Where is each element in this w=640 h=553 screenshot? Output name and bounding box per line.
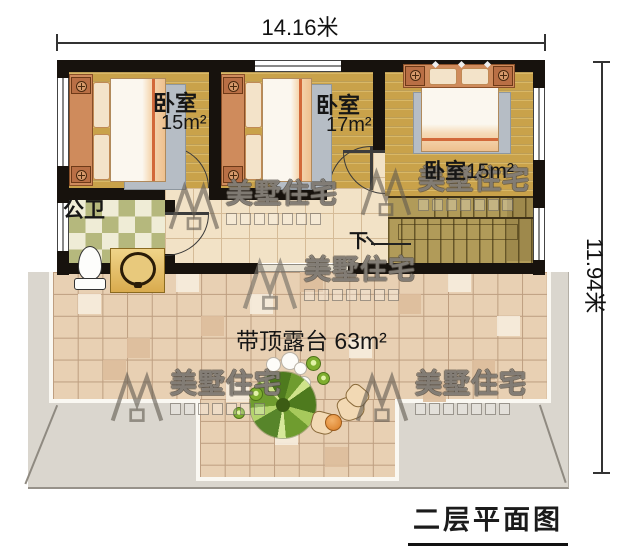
toilet-tank — [74, 278, 106, 290]
room-area-bedroom2: 17m² — [326, 114, 372, 137]
room-label-bathroom: 公卫 — [63, 194, 105, 224]
room-area-terrace: 63m² — [334, 328, 386, 354]
tile-patch — [423, 382, 446, 402]
dimension-top-line — [57, 42, 545, 44]
tile-patch — [497, 316, 520, 336]
tile-patch — [226, 382, 249, 402]
bed-post — [223, 77, 243, 94]
clover-plant — [317, 372, 330, 385]
bed-post — [405, 66, 425, 86]
bed-pillow — [245, 82, 262, 128]
wall — [373, 60, 385, 152]
bed-pillow — [429, 68, 457, 85]
tile-patch — [398, 294, 421, 314]
tile-patch — [472, 360, 495, 380]
bed-post — [223, 166, 243, 183]
floor-plan-canvas: 美墅住宅 美墅住宅 美墅住宅 美墅住宅 — [0, 0, 640, 553]
window — [533, 88, 545, 160]
dimension-tick — [544, 34, 546, 51]
room-area-bedroom1: 15m² — [161, 112, 207, 135]
room-label-terrace-name: 带顶露台 — [236, 328, 328, 354]
window — [255, 60, 341, 72]
page-title: 二层平面图 — [408, 498, 568, 546]
wall — [209, 60, 221, 200]
window — [57, 78, 69, 166]
bed-duvet — [421, 86, 499, 152]
stairs-down-label: 下 — [349, 226, 368, 253]
sink-faucet — [134, 282, 142, 288]
bed-post — [71, 166, 91, 183]
dimension-top-label: 14.16米 — [220, 10, 380, 42]
tile-patch — [103, 360, 126, 380]
sink-basin — [120, 252, 156, 286]
tile-patch — [325, 447, 348, 467]
toilet — [78, 246, 102, 280]
room-label-bedroom3: 卧室15m² — [424, 155, 514, 185]
bed-pillow — [93, 82, 110, 128]
terrace-threshold — [258, 264, 348, 272]
room-area-bedroom3: 15m² — [466, 160, 514, 183]
pebble — [266, 357, 281, 372]
bed-pillow — [461, 68, 489, 85]
bed-post — [493, 66, 513, 86]
dimension-tick — [56, 34, 58, 51]
room-label-bedroom3-name: 卧室 — [424, 160, 466, 183]
plant-center — [276, 398, 290, 412]
dimension-right-label: 11.94米 — [580, 238, 612, 313]
room-label-terrace: 带顶露台 63m² — [236, 322, 387, 356]
tile-patch — [201, 316, 224, 336]
clover-plant — [249, 387, 263, 401]
stairs-direction-line — [371, 243, 411, 245]
bed-duvet — [262, 78, 312, 182]
tile-patch — [176, 272, 199, 292]
clover-plant — [233, 407, 245, 419]
tile-patch — [448, 272, 471, 292]
bed-pillow — [93, 134, 110, 180]
tile-patch — [300, 272, 323, 292]
bed-post — [71, 77, 91, 94]
window — [533, 208, 545, 260]
dimension-tick — [593, 472, 610, 474]
wall — [348, 263, 545, 274]
bed-pillow — [245, 134, 262, 180]
clover-plant — [306, 356, 321, 371]
stair-rail — [398, 224, 518, 240]
tile-patch — [250, 294, 273, 314]
tile-patch — [78, 294, 101, 314]
tile-patch — [127, 338, 150, 358]
dimension-tick — [593, 61, 610, 63]
terrace-table — [325, 414, 342, 431]
